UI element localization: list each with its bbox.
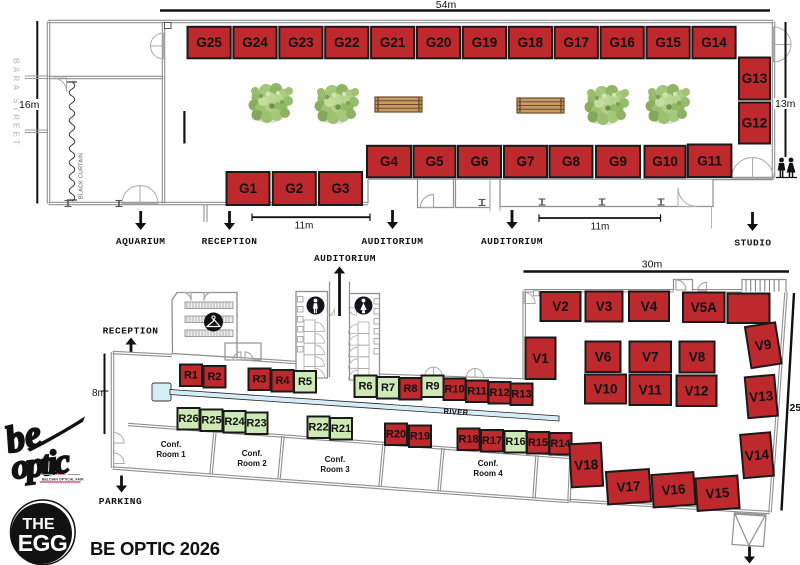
svg-text:G15: G15	[655, 35, 681, 50]
svg-text:R25: R25	[201, 414, 221, 426]
svg-text:Room 1: Room 1	[156, 450, 186, 459]
svg-text:G12: G12	[742, 116, 768, 131]
svg-text:V8: V8	[689, 350, 706, 365]
svg-text:R23: R23	[246, 417, 266, 429]
svg-text:Room 3: Room 3	[320, 465, 350, 474]
svg-text:G23: G23	[288, 35, 314, 50]
svg-text:11m: 11m	[591, 221, 610, 232]
svg-text:13m: 13m	[775, 98, 796, 110]
svg-text:V18: V18	[574, 457, 599, 473]
svg-text:RIVER: RIVER	[443, 407, 469, 418]
svg-text:Room 4: Room 4	[473, 469, 503, 478]
svg-text:G8: G8	[562, 154, 581, 169]
svg-text:G11: G11	[697, 153, 722, 168]
svg-text:V17: V17	[616, 478, 641, 495]
svg-text:R21: R21	[331, 423, 351, 435]
svg-text:G24: G24	[242, 35, 268, 50]
svg-text:25m: 25m	[790, 402, 800, 414]
svg-text:G9: G9	[609, 154, 627, 169]
svg-text:R9: R9	[425, 380, 439, 392]
svg-text:G4: G4	[380, 154, 399, 169]
svg-text:R1: R1	[184, 369, 198, 381]
svg-text:R2: R2	[207, 371, 221, 383]
svg-text:G3: G3	[331, 181, 350, 196]
svg-text:R14: R14	[550, 438, 571, 450]
svg-text:11m: 11m	[295, 221, 314, 232]
svg-text:V6: V6	[595, 349, 612, 364]
svg-text:R22: R22	[308, 421, 328, 433]
svg-text:Conf.: Conf.	[478, 459, 498, 468]
svg-text:V15: V15	[705, 485, 730, 502]
svg-text:RECEPTION: RECEPTION	[103, 326, 159, 337]
svg-text:R5: R5	[298, 376, 312, 388]
svg-text:R10: R10	[444, 383, 464, 395]
svg-text:G14: G14	[701, 35, 727, 50]
svg-text:R15: R15	[528, 437, 548, 449]
svg-text:R3: R3	[252, 373, 266, 385]
svg-text:V5A: V5A	[691, 300, 718, 315]
svg-text:G20: G20	[426, 35, 452, 50]
svg-text:AUDITORIUM: AUDITORIUM	[361, 236, 423, 247]
svg-text:EGG: EGG	[18, 530, 68, 556]
svg-text:G13: G13	[742, 71, 768, 86]
svg-text:AQUARIUM: AQUARIUM	[116, 236, 166, 247]
svg-text:G1: G1	[239, 181, 258, 196]
svg-text:AUDITORIUM: AUDITORIUM	[481, 236, 543, 247]
svg-text:G22: G22	[334, 35, 360, 50]
svg-text:54m: 54m	[436, 0, 457, 11]
svg-text:V12: V12	[684, 383, 708, 398]
svg-text:R7: R7	[381, 382, 395, 394]
svg-text:G6: G6	[470, 154, 489, 169]
svg-text:STUDIO: STUDIO	[734, 238, 771, 249]
svg-text:G21: G21	[380, 35, 406, 50]
svg-text:RECEPTION: RECEPTION	[202, 236, 258, 247]
svg-text:Conf.: Conf.	[242, 449, 262, 458]
svg-text:R19: R19	[410, 430, 430, 442]
svg-text:R20: R20	[386, 428, 406, 440]
svg-text:Conf.: Conf.	[325, 455, 345, 464]
svg-text:R24: R24	[224, 416, 245, 428]
svg-text:V11: V11	[639, 382, 663, 397]
svg-text:R12: R12	[489, 387, 509, 399]
svg-text:BELGIAN OPTICAL FAIR: BELGIAN OPTICAL FAIR	[42, 478, 84, 482]
svg-text:BE OPTIC 2026: BE OPTIC 2026	[90, 538, 220, 559]
svg-text:G18: G18	[518, 35, 544, 50]
svg-text:Conf.: Conf.	[161, 440, 181, 449]
svg-text:8m: 8m	[92, 388, 106, 399]
svg-text:R4: R4	[275, 375, 290, 387]
svg-text:R6: R6	[358, 380, 372, 392]
svg-text:V10: V10	[593, 382, 617, 397]
svg-text:R17: R17	[482, 435, 502, 447]
svg-text:R8: R8	[403, 383, 417, 395]
svg-text:G10: G10	[652, 154, 678, 169]
svg-text:PARKING: PARKING	[99, 496, 142, 507]
svg-text:R16: R16	[505, 436, 525, 448]
svg-text:R26: R26	[178, 413, 198, 425]
svg-text:30m: 30m	[642, 259, 663, 271]
svg-text:V7: V7	[642, 349, 659, 364]
svg-text:V16: V16	[661, 481, 686, 498]
svg-text:AUDITORIUM: AUDITORIUM	[314, 253, 376, 264]
svg-text:16m: 16m	[19, 99, 40, 111]
svg-text:V13: V13	[749, 388, 775, 405]
svg-text:G5: G5	[425, 154, 444, 169]
svg-text:V4: V4	[641, 299, 658, 314]
svg-text:G2: G2	[285, 181, 303, 196]
svg-text:G7: G7	[516, 154, 534, 169]
svg-text:V2: V2	[552, 299, 569, 314]
svg-text:V9: V9	[754, 337, 773, 354]
svg-text:R18: R18	[458, 433, 478, 445]
svg-text:G19: G19	[472, 35, 498, 50]
svg-text:V1: V1	[532, 351, 549, 366]
svg-text:G25: G25	[196, 35, 222, 50]
svg-text:V14: V14	[744, 447, 770, 464]
svg-text:G16: G16	[609, 35, 635, 50]
svg-text:R11: R11	[467, 385, 487, 397]
svg-text:BLACK CURTAIN: BLACK CURTAIN	[79, 153, 85, 199]
svg-text:G17: G17	[564, 35, 590, 50]
svg-text:R13: R13	[511, 388, 531, 400]
svg-text:Room 2: Room 2	[237, 459, 267, 468]
svg-text:V3: V3	[596, 299, 613, 314]
